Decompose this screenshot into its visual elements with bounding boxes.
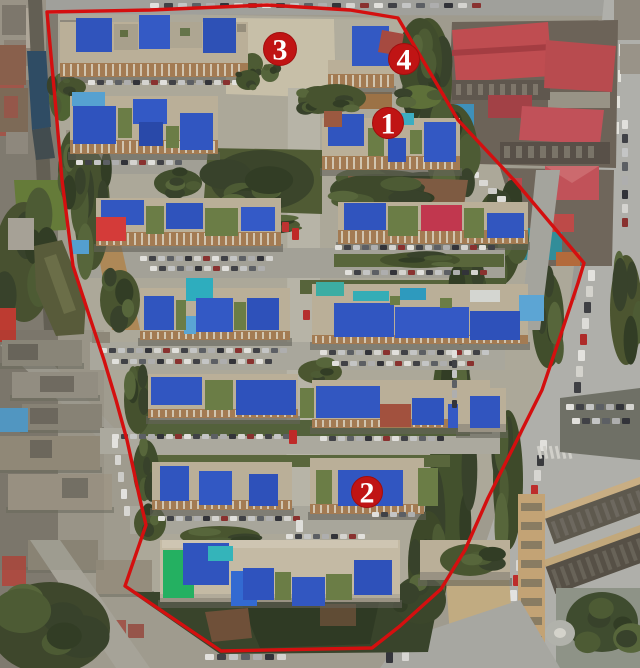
svg-text:4: 4 <box>397 44 412 77</box>
svg-text:2: 2 <box>360 477 375 510</box>
svg-text:3: 3 <box>273 34 288 67</box>
svg-text:1: 1 <box>381 108 396 141</box>
